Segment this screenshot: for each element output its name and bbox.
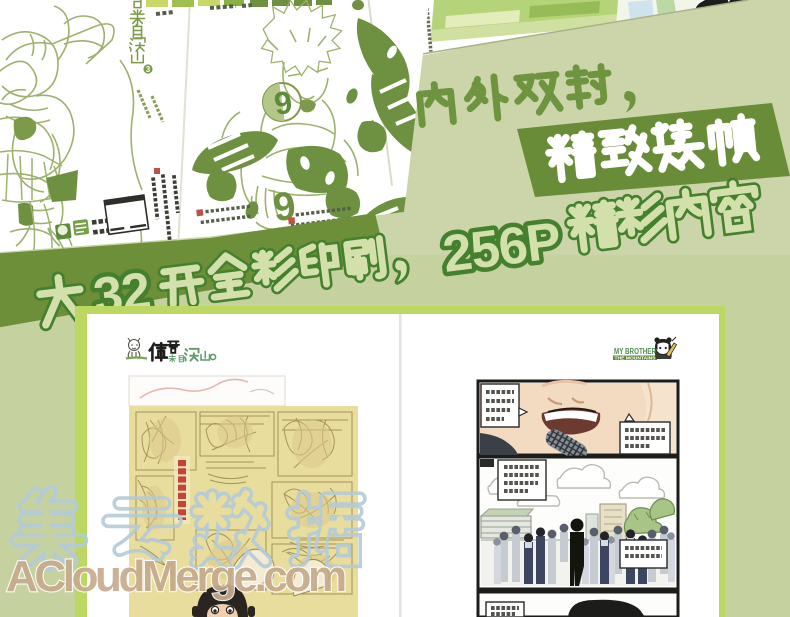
svg-text:3: 3 xyxy=(146,65,151,74)
svg-text:ACloudMerge.com: ACloudMerge.com xyxy=(6,552,345,601)
svg-text:THE MOUNTAINS: THE MOUNTAINS xyxy=(615,355,656,360)
